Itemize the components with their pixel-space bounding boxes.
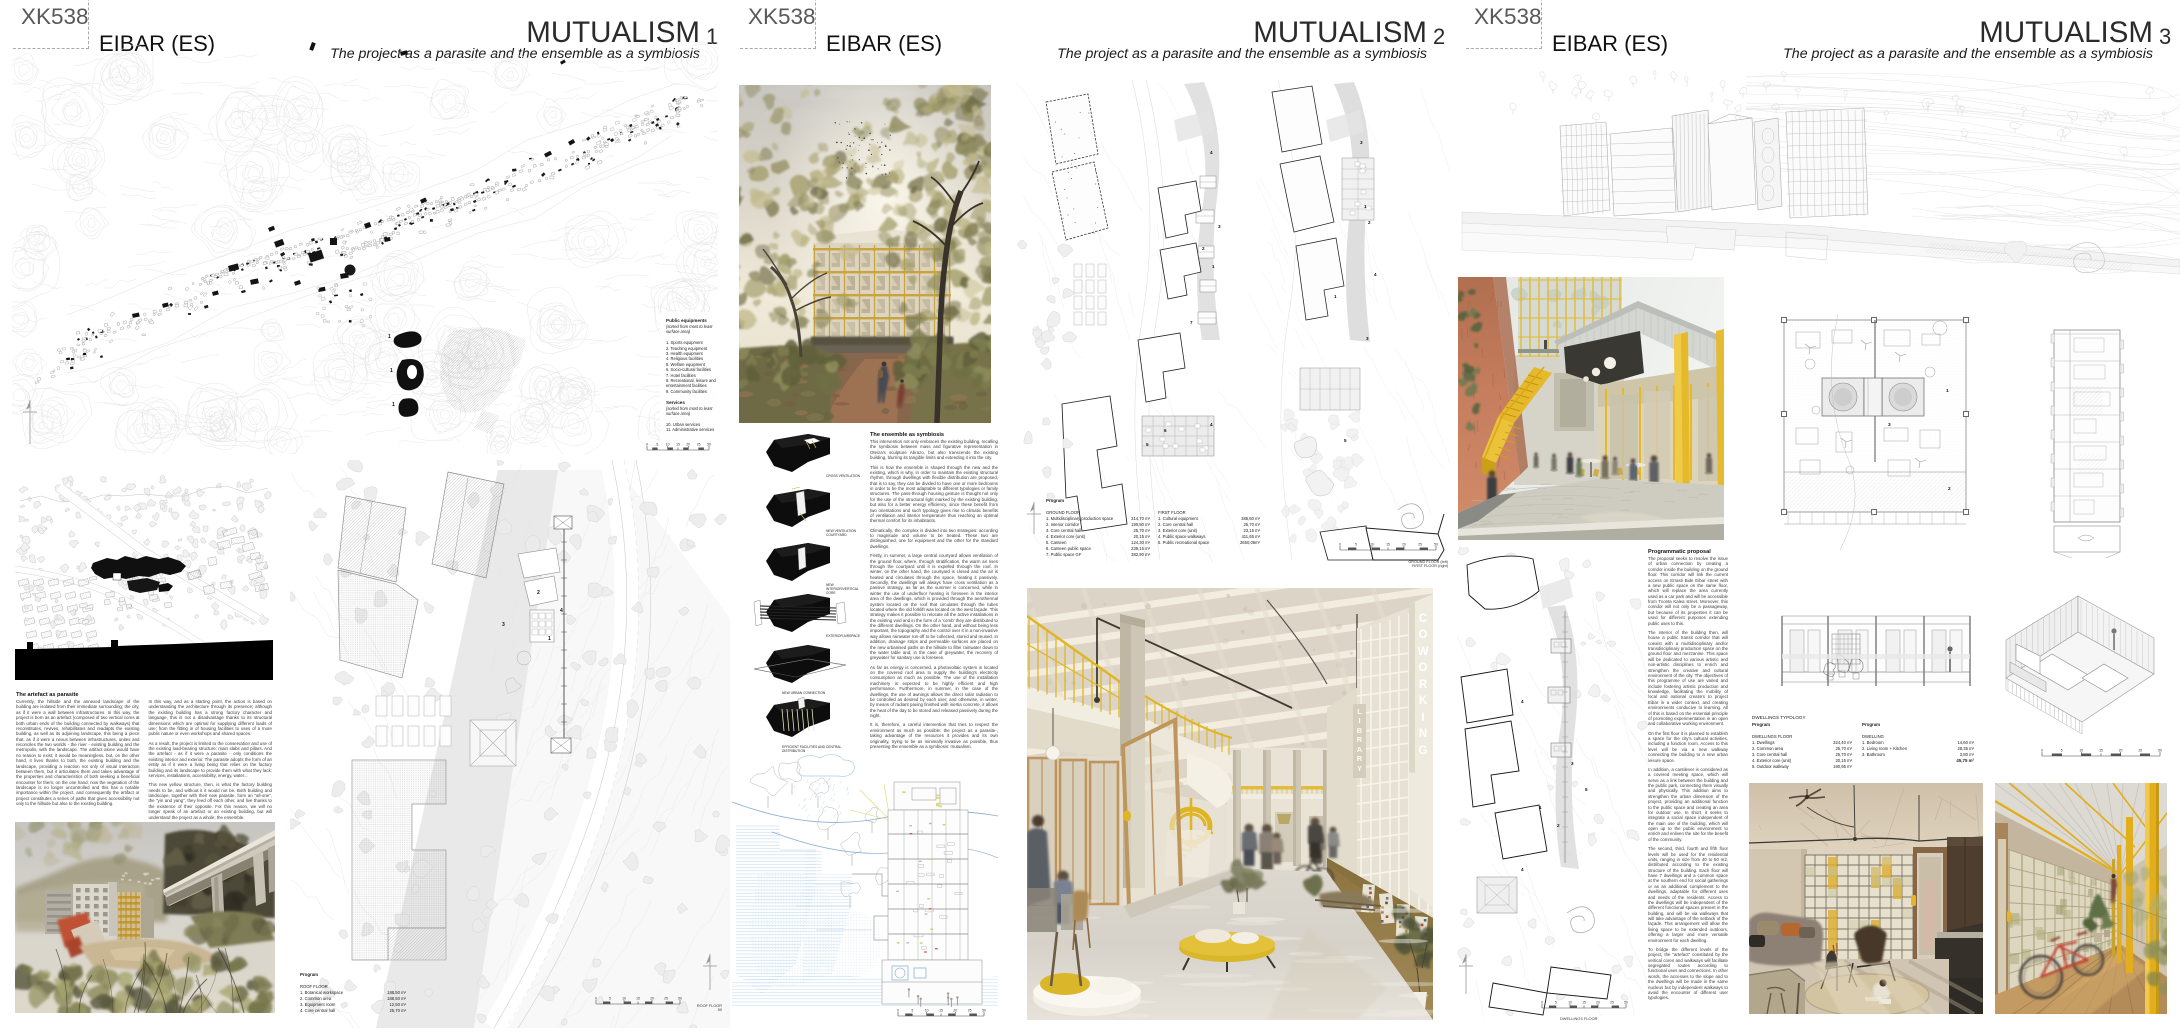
svg-text:4: 4: [1210, 150, 1213, 155]
svg-text:4: 4: [1521, 867, 1524, 872]
svg-text:4: 4: [560, 608, 563, 614]
svg-text:1: 1: [390, 368, 393, 374]
svg-text:5: 5: [911, 1009, 913, 1013]
svg-text:5: 5: [1344, 438, 1347, 443]
svg-text:50: 50: [2158, 749, 2162, 753]
svg-text:2: 2: [1202, 246, 1205, 251]
svg-text:20: 20: [650, 997, 654, 1001]
svg-text:20: 20: [686, 443, 690, 447]
svg-text:R: R: [1357, 754, 1363, 763]
svg-text:25: 25: [2138, 749, 2142, 753]
svg-text:A: A: [1357, 745, 1363, 754]
svg-text:10: 10: [622, 997, 626, 1001]
svg-text:1: 1: [1946, 388, 1949, 394]
svg-text:R: R: [1419, 679, 1428, 691]
svg-text:25: 25: [697, 443, 701, 447]
svg-text:G: G: [1419, 745, 1428, 757]
svg-text:5: 5: [656, 443, 658, 447]
svg-text:O: O: [1419, 629, 1428, 641]
svg-text:1: 1: [388, 334, 391, 340]
svg-text:15: 15: [939, 1009, 943, 1013]
svg-text:5: 5: [1355, 543, 1357, 547]
svg-text:0: 0: [897, 1009, 899, 1013]
svg-text:3: 3: [502, 622, 505, 628]
svg-text:15: 15: [636, 997, 640, 1001]
svg-text:0: 0: [1541, 1001, 1543, 1005]
svg-text:K: K: [1419, 695, 1428, 707]
svg-text:20: 20: [953, 1009, 957, 1013]
svg-text:25: 25: [664, 997, 668, 1001]
svg-text:50: 50: [1434, 543, 1438, 547]
svg-text:20: 20: [2119, 749, 2123, 753]
svg-text:15: 15: [1386, 543, 1390, 547]
svg-text:15: 15: [676, 443, 680, 447]
svg-text:1: 1: [548, 636, 551, 642]
svg-text:N: N: [1419, 728, 1427, 740]
svg-text:I: I: [1358, 716, 1360, 725]
svg-text:2: 2: [1948, 486, 1951, 492]
svg-text:15: 15: [1582, 1001, 1586, 1005]
svg-text:25: 25: [1418, 543, 1422, 547]
svg-text:20: 20: [1596, 1001, 1600, 1005]
svg-text:1: 1: [1334, 294, 1337, 299]
svg-text:5: 5: [1146, 442, 1149, 447]
svg-text:10: 10: [1568, 1001, 1572, 1005]
svg-text:50: 50: [982, 1009, 986, 1013]
svg-text:2: 2: [1368, 220, 1371, 225]
svg-text:I: I: [1421, 712, 1424, 724]
svg-text:0: 0: [1339, 543, 1341, 547]
svg-text:4: 4: [1374, 272, 1377, 277]
svg-text:4: 4: [1210, 422, 1213, 427]
svg-text:R: R: [1357, 735, 1363, 744]
svg-text:3: 3: [1218, 224, 1221, 229]
svg-text:Y: Y: [1357, 764, 1362, 773]
svg-text:7: 7: [1190, 320, 1193, 325]
svg-text:0: 0: [595, 997, 597, 1001]
svg-text:L: L: [1357, 707, 1362, 716]
svg-text:5: 5: [609, 997, 611, 1001]
svg-text:C: C: [1419, 613, 1427, 625]
svg-text:25: 25: [1610, 1001, 1614, 1005]
svg-text:50: 50: [707, 443, 711, 447]
svg-text:15: 15: [2099, 749, 2103, 753]
svg-text:B: B: [1357, 726, 1363, 735]
svg-text:4: 4: [1521, 699, 1524, 704]
svg-text:2: 2: [1557, 823, 1560, 828]
svg-text:3: 3: [1366, 336, 1369, 341]
svg-text:1: 1: [1212, 264, 1215, 269]
svg-text:3: 3: [1888, 422, 1891, 428]
svg-text:0: 0: [2041, 749, 2043, 753]
svg-text:1: 1: [1539, 805, 1542, 810]
svg-text:3: 3: [1571, 761, 1574, 766]
svg-text:10: 10: [666, 443, 670, 447]
svg-text:2: 2: [537, 590, 540, 596]
svg-text:1: 1: [392, 402, 395, 408]
svg-text:25: 25: [968, 1009, 972, 1013]
svg-text:20: 20: [1402, 543, 1406, 547]
svg-text:50: 50: [1624, 1001, 1628, 1005]
svg-text:10: 10: [1370, 543, 1374, 547]
svg-text:5: 5: [1585, 787, 1588, 792]
svg-text:5: 5: [2061, 749, 2063, 753]
svg-text:50: 50: [678, 997, 682, 1001]
svg-text:O: O: [1419, 662, 1428, 674]
svg-text:6: 6: [1164, 428, 1167, 433]
svg-text:5: 5: [1555, 1001, 1557, 1005]
svg-text:W: W: [1418, 646, 1429, 658]
svg-text:10: 10: [925, 1009, 929, 1013]
svg-text:0: 0: [646, 443, 648, 447]
svg-text:1: 1: [1364, 204, 1367, 209]
svg-text:3: 3: [1360, 140, 1363, 145]
svg-text:10: 10: [2079, 749, 2083, 753]
